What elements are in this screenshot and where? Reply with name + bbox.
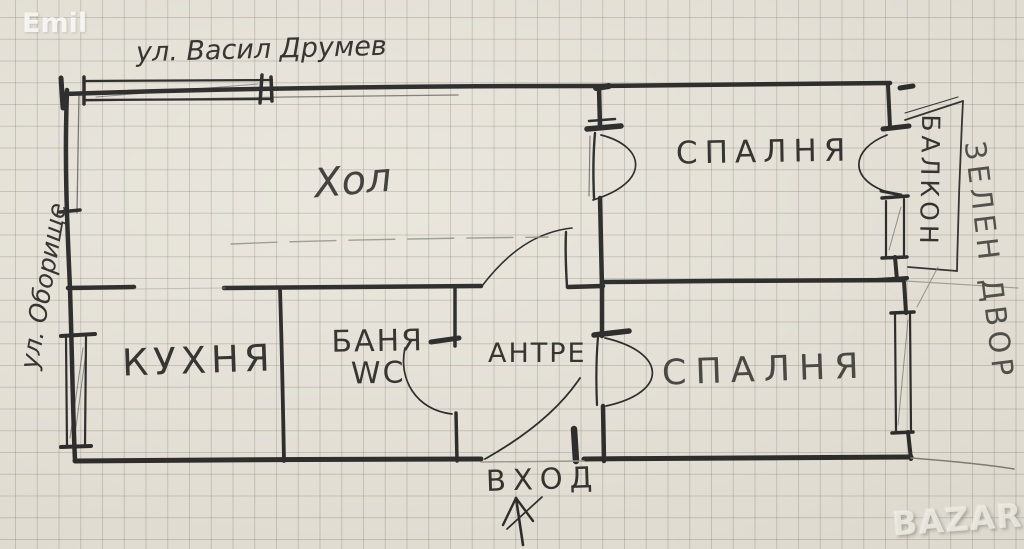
floor-plan-sketch-photo: ул. Васил Друмев ул. Оборище Хол СПАЛНЯ … [0,0,1024,549]
wall-hall-bedroom-lower [603,406,604,461]
pencil-kitchen-opening [134,288,225,289]
wall-bottom-right [584,457,911,459]
bathroom-label-line2: WC [351,355,406,391]
door-leaf-bedroom-bottom [596,337,598,405]
door-arc-entrance [485,378,580,459]
room-label-bathroom: БАНЯ WC [322,325,433,390]
wall-mid-kitchen-left [68,287,134,288]
room-label-bedroom-top: СПАЛНЯ [676,134,853,170]
door-leaf-entrance [574,429,576,461]
doors [404,119,909,462]
pencil-dashed-living [231,237,548,244]
street-label-top: ул. Васил Друмев [136,33,387,68]
door-leaf-bedroom-top [593,133,595,198]
wall-right-upper-low [895,257,897,280]
wall-right-upper [888,85,890,127]
site-logo-watermark: BAZAR [891,498,1024,542]
wall-bottom-left [75,459,481,461]
arrow-extra-stroke [507,497,542,529]
door-jamb-bedroom-top-second [589,119,615,121]
corner-tick-top-right [900,86,913,88]
wall-mid-center [224,286,481,288]
room-label-hallway: АНТРЕ [488,340,587,368]
wall-top [64,83,890,94]
ink-ticks [60,78,913,280]
door-arc-bedroom-bottom [605,338,652,406]
wall-left-inner-line [77,93,79,213]
pencil-bottom-extension [911,458,1014,469]
windows [61,75,914,447]
door-leaf-living-hall [566,232,567,287]
window-bedroom-bottom-diagonal [898,320,908,425]
door-jamb-bedroom-bottom [594,331,629,335]
wall-bath-hall-lower [456,413,457,461]
corner-tick-top-left [61,78,63,108]
door-leaf-bedroom-top-second [589,136,590,196]
bathroom-label-line1: БАНЯ [331,323,424,360]
photo-credit-watermark: Emil [22,10,87,38]
balcony-faint-stroke [917,267,938,307]
window-bedroom-top-diagonal [889,207,901,250]
balcony-bottom-edge [908,267,957,271]
door-jamb-balcony-top [883,126,909,129]
door-jamb-bedroom-top [587,126,621,129]
wall-tick-bedroom-divider [877,278,907,280]
wall-mid-right-of-door [568,286,603,287]
room-label-kitchen: КУХНЯ [121,339,275,383]
entrance-label: ВХОД [486,462,600,496]
room-label-living: Хол [312,157,393,206]
arrow-head-left [503,498,516,525]
wall-kitchen-bath [280,289,284,461]
door-arc-balcony [859,135,890,193]
door-arc-bedroom-top [593,135,636,200]
wall-tick-top-divider [596,86,609,88]
room-label-bedroom-bottom: СПАЛНЯ [661,348,868,392]
door-jamb-balcony-bottom [881,191,901,195]
wall-living-bedroom-lower [600,198,602,288]
wall-mid-bedrooms [603,280,905,282]
wall-right-lower [904,281,906,313]
room-label-balcony: БАЛКОН [915,114,944,248]
entrance-arrow-icon [503,497,542,545]
